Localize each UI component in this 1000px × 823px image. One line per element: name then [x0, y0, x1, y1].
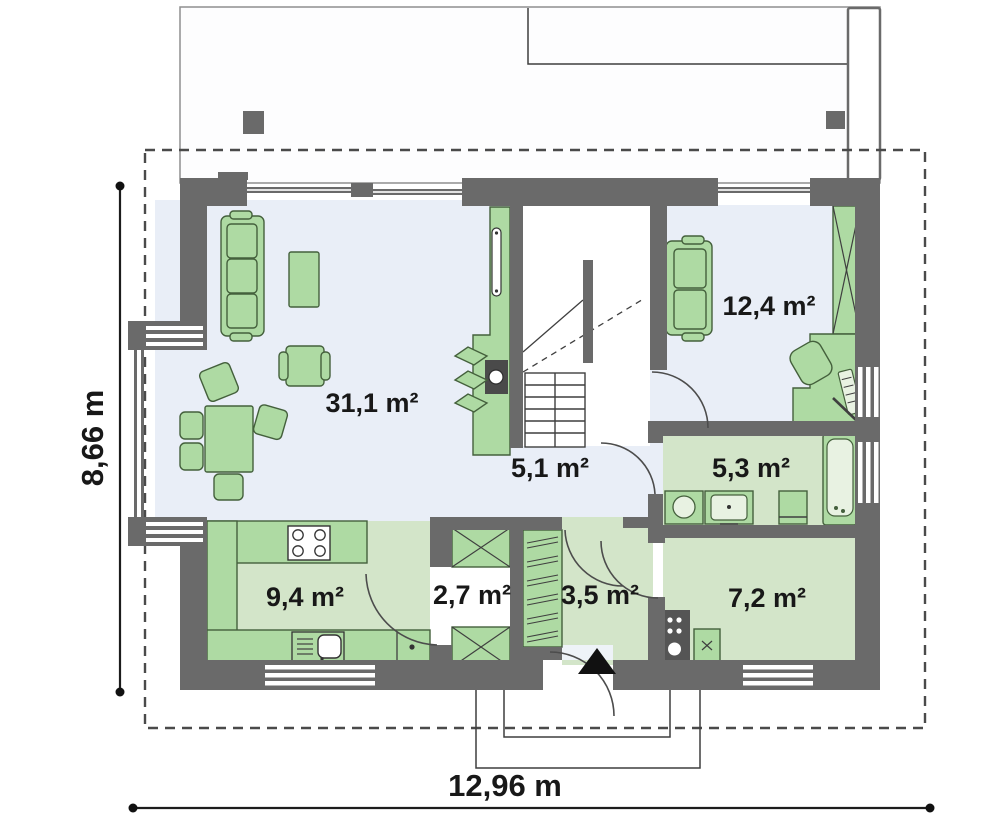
flue-cap [495, 289, 498, 292]
window-left-upper [128, 321, 207, 350]
room-label-bathroom: 5,3 m² [712, 453, 790, 483]
chimney [848, 8, 880, 180]
dining-table-icon [205, 406, 253, 472]
dimension-height-label: 8,66 m [75, 390, 110, 487]
window-mullion [351, 183, 373, 197]
room-label-bedroom: 12,4 m² [722, 291, 815, 321]
wall-stub [583, 260, 593, 363]
sofa-2seat-icon [666, 236, 712, 341]
wall-hall-south [430, 517, 562, 530]
wall-entry-utility [648, 597, 665, 660]
flue-pipe [492, 228, 501, 296]
room-label-utility: 7,2 m² [728, 583, 806, 613]
flue-cap [495, 231, 498, 234]
cooktop-icon [288, 526, 330, 560]
corner-glazing-left [134, 350, 144, 518]
floor-plan-page: 31,1 m² 12,4 m² 5,1 m² 5,3 m² 9,4 m² 2,7… [0, 0, 1000, 823]
firewood-decor [455, 347, 487, 412]
wall-kitchen-pantry-upper [430, 530, 452, 567]
room-label-hall: 5,1 m² [511, 453, 589, 483]
cabinet-knob-icon [409, 644, 414, 649]
room-label-kitchen: 9,4 m² [266, 582, 344, 612]
dining-chair-icon [180, 412, 203, 439]
stair-treads [525, 373, 585, 447]
coffee-table-icon [289, 252, 319, 307]
dimension-left: 8,66 m [75, 182, 125, 697]
boiler-icon [663, 610, 690, 662]
wall-kitchen-pantry-lower [430, 645, 452, 667]
wall-bedroom-bathroom [648, 421, 855, 436]
wall-left-upper [180, 206, 207, 324]
window-utility [743, 665, 813, 686]
dining-chair-icon [180, 443, 203, 470]
toilet-icon [779, 491, 807, 524]
room-label-entry: 3,5 m² [561, 580, 639, 610]
window-kitchen [265, 665, 375, 686]
wall-pantry-closet [510, 530, 523, 667]
floor-plan-canvas: 31,1 m² 12,4 m² 5,1 m² 5,3 m² 9,4 m² 2,7… [0, 0, 1000, 823]
room-label-pantry: 2,7 m² [433, 580, 511, 610]
window-left-lower [128, 517, 207, 546]
wall-top-right [810, 178, 880, 206]
window-bathroom-right [858, 442, 879, 503]
terrace [180, 7, 880, 183]
washing-machine-icon [665, 491, 703, 524]
wall-bathroom-utility [648, 525, 880, 538]
armchair-icon [279, 346, 330, 386]
dining-chair-icon [214, 474, 243, 500]
dimension-bottom: 12,96 m [129, 768, 935, 813]
wall-top-left [180, 178, 247, 206]
window-bedroom-right [858, 367, 879, 417]
terrace-post [826, 111, 845, 129]
room-label-living: 31,1 m² [325, 388, 418, 418]
bathroom-sink-icon [705, 491, 753, 524]
dimension-width-label: 12,96 m [448, 768, 562, 803]
bathtub-icon [823, 434, 857, 525]
wall-stair-right [650, 206, 667, 370]
wall-stair-left [510, 206, 523, 448]
terrace-post [243, 111, 264, 134]
sofa-3seat-icon [221, 211, 264, 341]
closet-icon [523, 530, 562, 647]
heater-unit-icon [694, 629, 720, 661]
wall-top-center [462, 178, 718, 206]
terrace-outline [180, 7, 880, 183]
stove-door-icon [489, 370, 503, 384]
storage-shelf-icon [452, 528, 510, 567]
